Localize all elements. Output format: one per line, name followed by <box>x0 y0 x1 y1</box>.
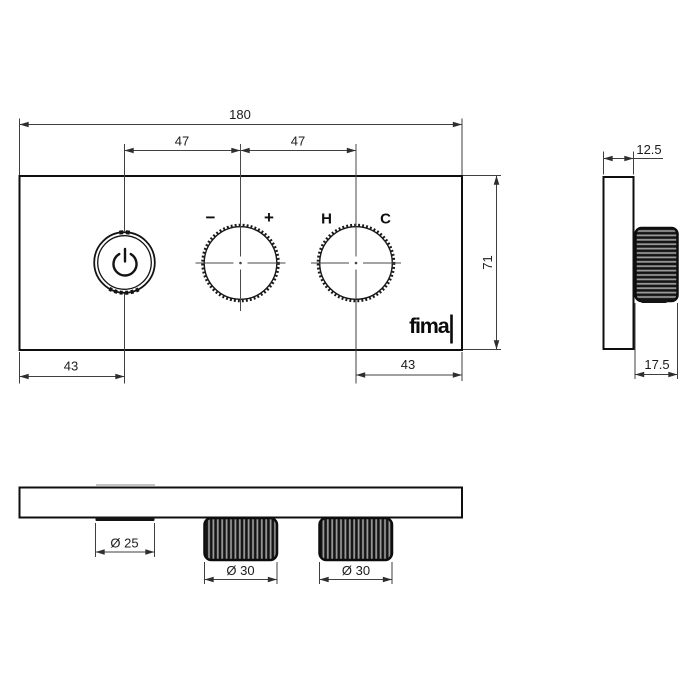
dim-offset-right: 43 <box>356 352 462 381</box>
dim-volume-knob-diameter: Ø 30 <box>205 562 278 584</box>
dim-button-diameter: Ø 25 <box>96 523 155 557</box>
side-knob-foot <box>641 299 667 303</box>
side-view: 12.5 17.5 <box>604 142 678 379</box>
drawing-canvas: 180 47 47 − + <box>0 0 700 700</box>
bottom-view: Ø 25 Ø 30 Ø 30 <box>20 485 463 584</box>
dim-spacing-right-label: 47 <box>291 134 305 149</box>
technical-drawing: 180 47 47 − + <box>0 0 700 700</box>
dim-thickness: 12.5 <box>604 142 664 175</box>
minus-label: − <box>206 208 216 227</box>
bottom-button <box>96 517 155 522</box>
plus-label: + <box>264 208 274 227</box>
dim-temperature-knob-diameter: Ø 30 <box>320 562 393 584</box>
bottom-knob-temperature <box>320 518 393 560</box>
dim-height-label: 71 <box>480 255 495 269</box>
fima-logo-text: fima <box>409 314 451 338</box>
dim-spacing-left-label: 47 <box>175 134 189 149</box>
dim-offset-right-label: 43 <box>401 357 415 372</box>
front-view: 180 47 47 − + <box>20 107 502 384</box>
dim-volume-knob-diameter-label: Ø 30 <box>226 563 254 578</box>
side-knob <box>636 228 678 301</box>
cold-label: C <box>380 211 391 228</box>
dim-offset-left-label: 43 <box>64 359 78 374</box>
bottom-plate <box>20 488 463 518</box>
dim-temperature-knob-diameter-label: Ø 30 <box>342 563 370 578</box>
dim-thickness-label: 12.5 <box>636 142 661 157</box>
center-mark <box>239 262 242 265</box>
dim-knob-depth-label: 17.5 <box>644 357 669 372</box>
dim-height: 71 <box>463 176 501 350</box>
side-plate <box>604 177 634 349</box>
dim-overall-width-label: 180 <box>229 107 251 122</box>
bottom-knob-volume <box>205 518 278 560</box>
dim-knob-depth: 17.5 <box>635 303 678 379</box>
power-button <box>94 232 155 293</box>
center-mark <box>355 262 358 265</box>
dim-offset-left: 43 <box>20 352 125 384</box>
hot-label: H <box>321 211 332 228</box>
dim-button-diameter-label: Ø 25 <box>110 536 138 551</box>
